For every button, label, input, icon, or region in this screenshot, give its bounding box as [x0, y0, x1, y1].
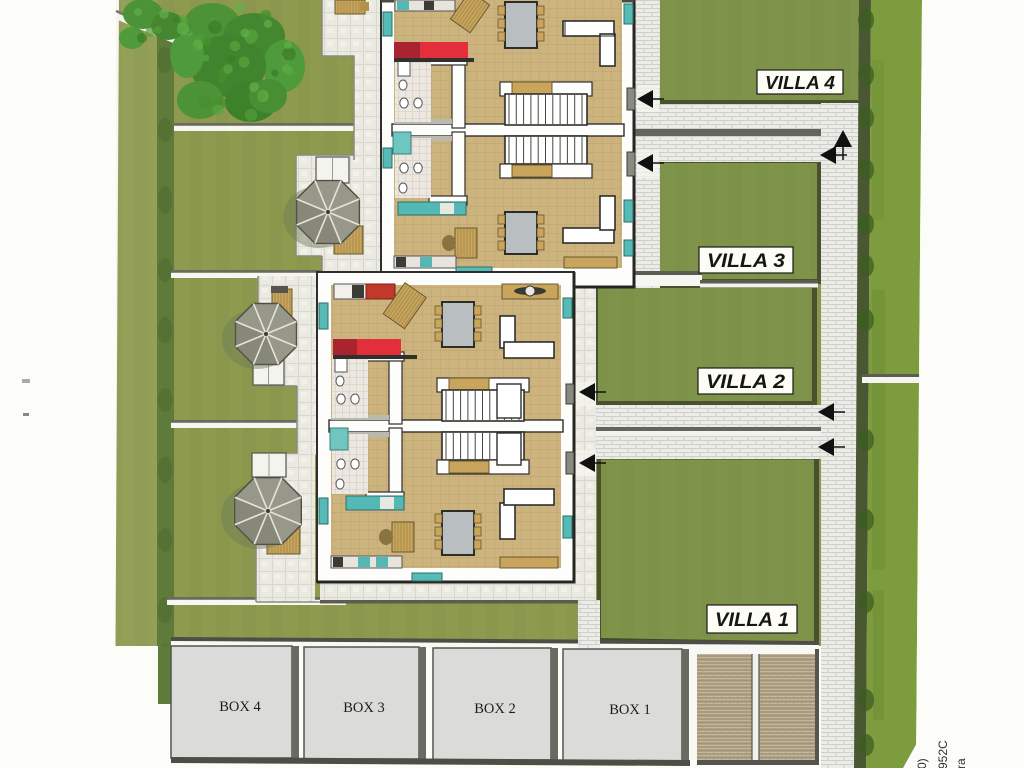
svg-text:VILLA 2: VILLA 2 — [706, 372, 785, 393]
svg-text:BOX 4: BOX 4 — [219, 699, 261, 715]
svg-text:BOX 1: BOX 1 — [609, 702, 651, 718]
svg-text:BOX 2: BOX 2 — [474, 701, 516, 717]
svg-text:VILLA 1: VILLA 1 — [715, 610, 789, 631]
svg-text:ra: ra — [954, 758, 968, 768]
svg-text:VILLA 3: VILLA 3 — [707, 251, 785, 272]
svg-text:0): 0) — [915, 758, 929, 768]
svg-text:VILLA 4: VILLA 4 — [765, 73, 835, 93]
svg-text:952C: 952C — [936, 740, 950, 768]
svg-text:BOX 3: BOX 3 — [343, 700, 385, 716]
